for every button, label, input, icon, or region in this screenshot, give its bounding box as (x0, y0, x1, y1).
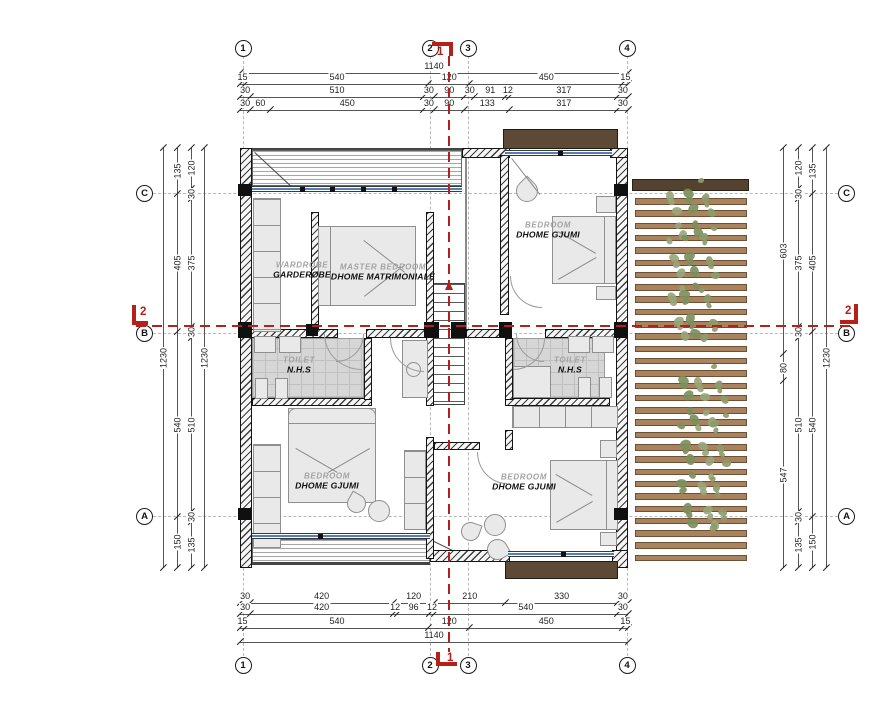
section-lines-layer: 1122 (0, 0, 880, 720)
section-marker-label: 2 (140, 307, 146, 319)
section-marker-label: 1 (437, 47, 443, 59)
section-line-horizontal (136, 325, 852, 327)
section-marker-label: 1 (447, 653, 453, 665)
section-marker-bar (840, 320, 858, 324)
section-marker-bar (436, 652, 440, 662)
section-marker-bar (854, 304, 858, 320)
section-marker-label: 2 (845, 306, 851, 318)
section-marker-bar (132, 321, 148, 325)
stair-direction-arrow (445, 281, 453, 290)
section-marker-bar (449, 44, 453, 56)
section-line-vertical (448, 56, 450, 652)
floor-plan-canvas: 11223344CCBBAA (0, 0, 880, 720)
